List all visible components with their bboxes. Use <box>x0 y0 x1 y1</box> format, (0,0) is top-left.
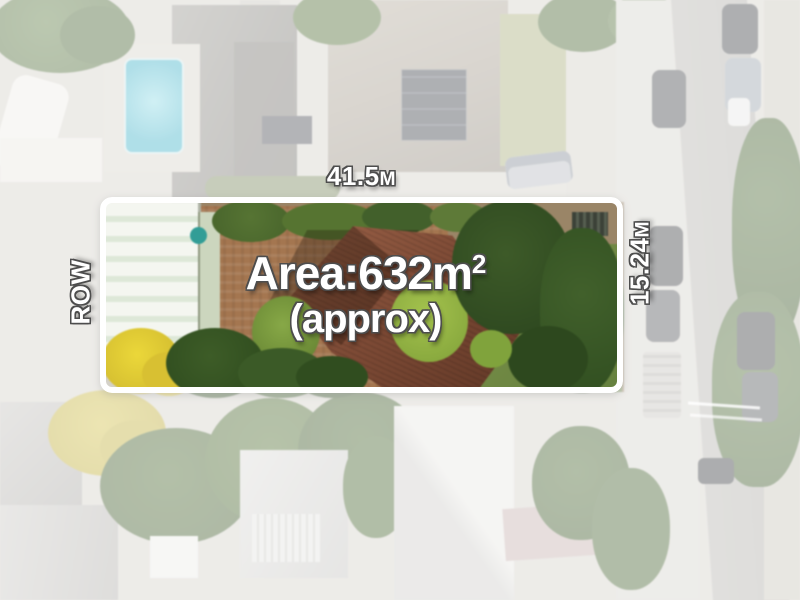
area-approx: (approx) <box>111 298 620 340</box>
area-label: Area:632m2 (approx) <box>103 249 620 340</box>
house-roof <box>0 138 102 182</box>
trailer <box>643 352 681 418</box>
frontage-value: 41.5 <box>327 161 380 191</box>
area-value: Area:632m2 <box>111 249 620 297</box>
depth-unit: M <box>633 221 654 238</box>
solar-panels <box>402 70 466 140</box>
area-superscript: 2 <box>472 249 485 279</box>
shed-roof <box>150 536 198 578</box>
tree <box>592 468 670 590</box>
tree <box>60 6 135 64</box>
car <box>652 70 686 128</box>
car <box>698 458 734 484</box>
property-aerial-image: 41.5M 15.24M ROW Area:632m2 (approx) <box>0 0 800 600</box>
depth-dimension-label: 15.24M <box>625 221 656 305</box>
depth-value: 15.24 <box>625 237 655 305</box>
frontage-unit: M <box>380 169 397 190</box>
car <box>728 98 750 126</box>
house-roof <box>0 505 118 600</box>
house-roof <box>394 406 514 600</box>
solar-panels <box>262 116 312 144</box>
car <box>737 312 775 370</box>
row-label: ROW <box>66 259 97 324</box>
garage-roof <box>252 514 320 562</box>
car <box>722 4 758 54</box>
frontage-dimension-label: 41.5M <box>100 161 623 192</box>
car <box>742 372 778 422</box>
swimming-pool <box>124 58 184 154</box>
